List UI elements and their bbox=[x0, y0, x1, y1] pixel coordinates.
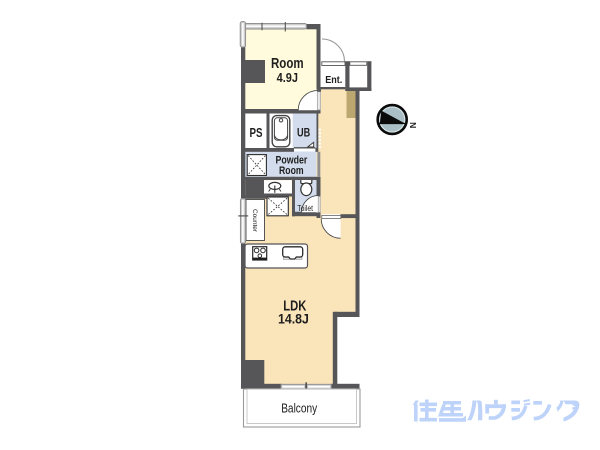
svg-text:Room: Room bbox=[279, 165, 304, 177]
svg-text:Toilet: Toilet bbox=[297, 204, 313, 213]
svg-text:N: N bbox=[408, 122, 418, 128]
svg-text:Balcony: Balcony bbox=[281, 402, 318, 416]
svg-text:PS: PS bbox=[250, 126, 263, 140]
svg-text:4.9J: 4.9J bbox=[277, 70, 298, 85]
svg-text:Ent.: Ent. bbox=[325, 75, 342, 86]
svg-text:UB: UB bbox=[297, 126, 310, 140]
svg-text:14.8J: 14.8J bbox=[278, 311, 309, 327]
svg-text:Counter: Counter bbox=[251, 209, 258, 233]
